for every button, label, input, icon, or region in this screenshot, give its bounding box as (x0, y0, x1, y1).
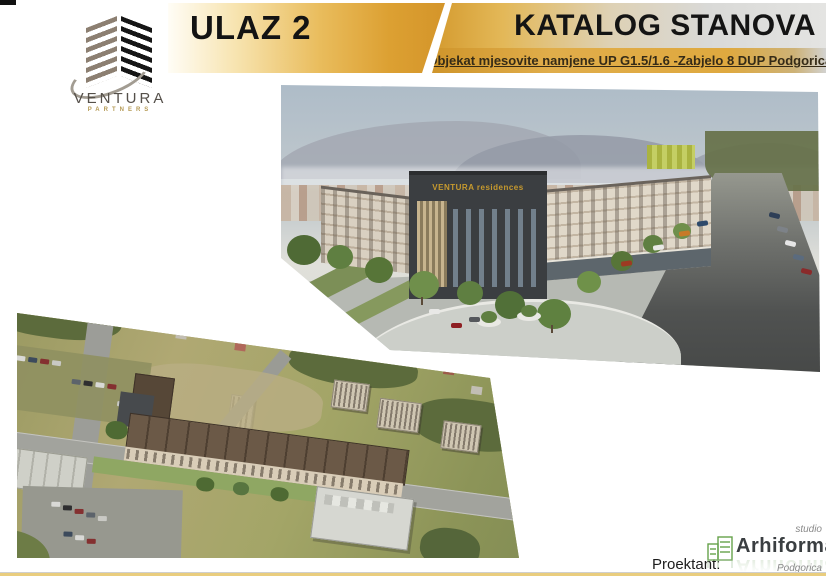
title-banner: KATALOG STANOVA Objekat mjesovite namjen… (432, 3, 826, 73)
tree (457, 281, 483, 305)
planter (517, 311, 541, 321)
tree (365, 257, 393, 283)
parking-lot-lower (20, 486, 183, 577)
bottom-gold-line (0, 572, 826, 576)
tree (577, 271, 601, 293)
house (175, 330, 187, 339)
catalog-slide: VENTURA PARTNERS ULAZ 2 KATALOG STANOVA … (0, 0, 826, 577)
apartment-block (440, 420, 481, 453)
entrance-label: ULAZ 2 (168, 3, 445, 47)
house (152, 315, 164, 324)
tree (537, 299, 571, 329)
brand-name: VENTURA (68, 90, 172, 107)
house (443, 366, 455, 375)
planter (477, 317, 501, 327)
arhiforma-logo: studio Arhiforma Arhiforma Podgorica (706, 524, 824, 574)
house (276, 334, 288, 343)
tree (327, 245, 353, 269)
car (469, 317, 480, 322)
house (234, 342, 246, 351)
house (207, 318, 219, 327)
tree (409, 271, 439, 299)
page-title: KATALOG STANOVA (432, 3, 826, 48)
apartment-block (376, 398, 422, 433)
arhiforma-building-icon (706, 534, 736, 568)
page-subtitle: Objekat mjesovite namjene UP G1.5/1.6 -Z… (432, 48, 826, 73)
render-photo-street: VENTURA residences (281, 85, 820, 372)
house (321, 332, 333, 341)
studio-word: studio (795, 524, 822, 535)
ventura-logo: VENTURA PARTNERS (68, 6, 172, 114)
entrance-banner: ULAZ 2 (168, 3, 445, 73)
car (451, 323, 462, 328)
apartment-block (331, 380, 370, 413)
glass-facade (453, 209, 539, 287)
building-sign: VENTURA residences (409, 183, 547, 192)
tree (287, 235, 321, 265)
corner-mark (0, 0, 16, 5)
brand-subtitle: PARTNERS (68, 107, 172, 113)
car (429, 309, 440, 314)
house (471, 386, 483, 395)
glass-building-far (647, 145, 695, 169)
